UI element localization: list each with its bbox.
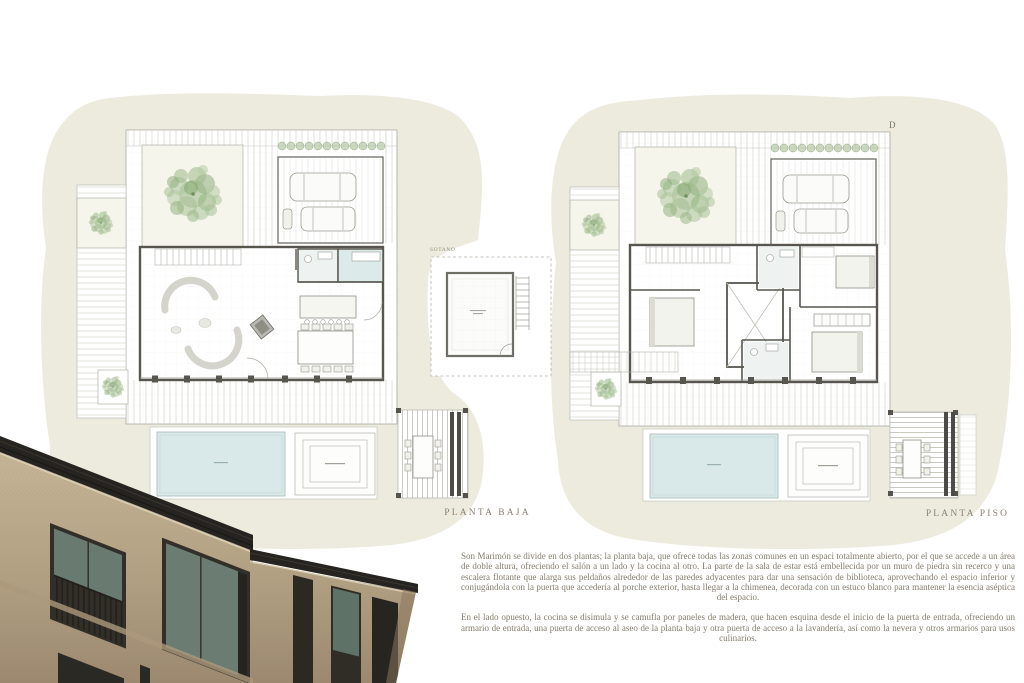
bathroom [759,247,798,288]
plan-label-basement: SOTANO [430,247,455,253]
project-sheet: PLANTA BAJA PLANTA PISO SOTANO D Son Mar… [0,0,1024,683]
lower-roof-deck [570,352,678,372]
wardrobe [814,314,870,326]
bathroom [744,342,788,380]
window [293,575,313,683]
outdoor-table [903,440,921,478]
laundry [338,249,383,282]
sheet-corner-mark: D [889,120,896,130]
plan-label-upper-floor: PLANTA PISO [905,509,1024,519]
description-paragraph-2: En el lado opuesto, la cocina se disimul… [461,612,1015,643]
house-ground-floor [140,247,383,383]
basement-plan [431,257,551,376]
bed-icon [650,298,694,346]
bathroom [298,249,338,282]
pergola [396,408,468,498]
outdoor-table [413,436,433,478]
stairs [646,247,730,263]
bed-icon [812,332,862,372]
description-paragraph-1: Son Marimón se divide en dos plantas; la… [461,551,1015,602]
project-description: Son Marimón se divide en dos plantas; la… [461,551,1015,653]
pergola [888,410,976,498]
plan-label-ground-floor: PLANTA BAJA [425,508,550,518]
bed-icon [836,256,874,288]
stairs [155,249,241,265]
